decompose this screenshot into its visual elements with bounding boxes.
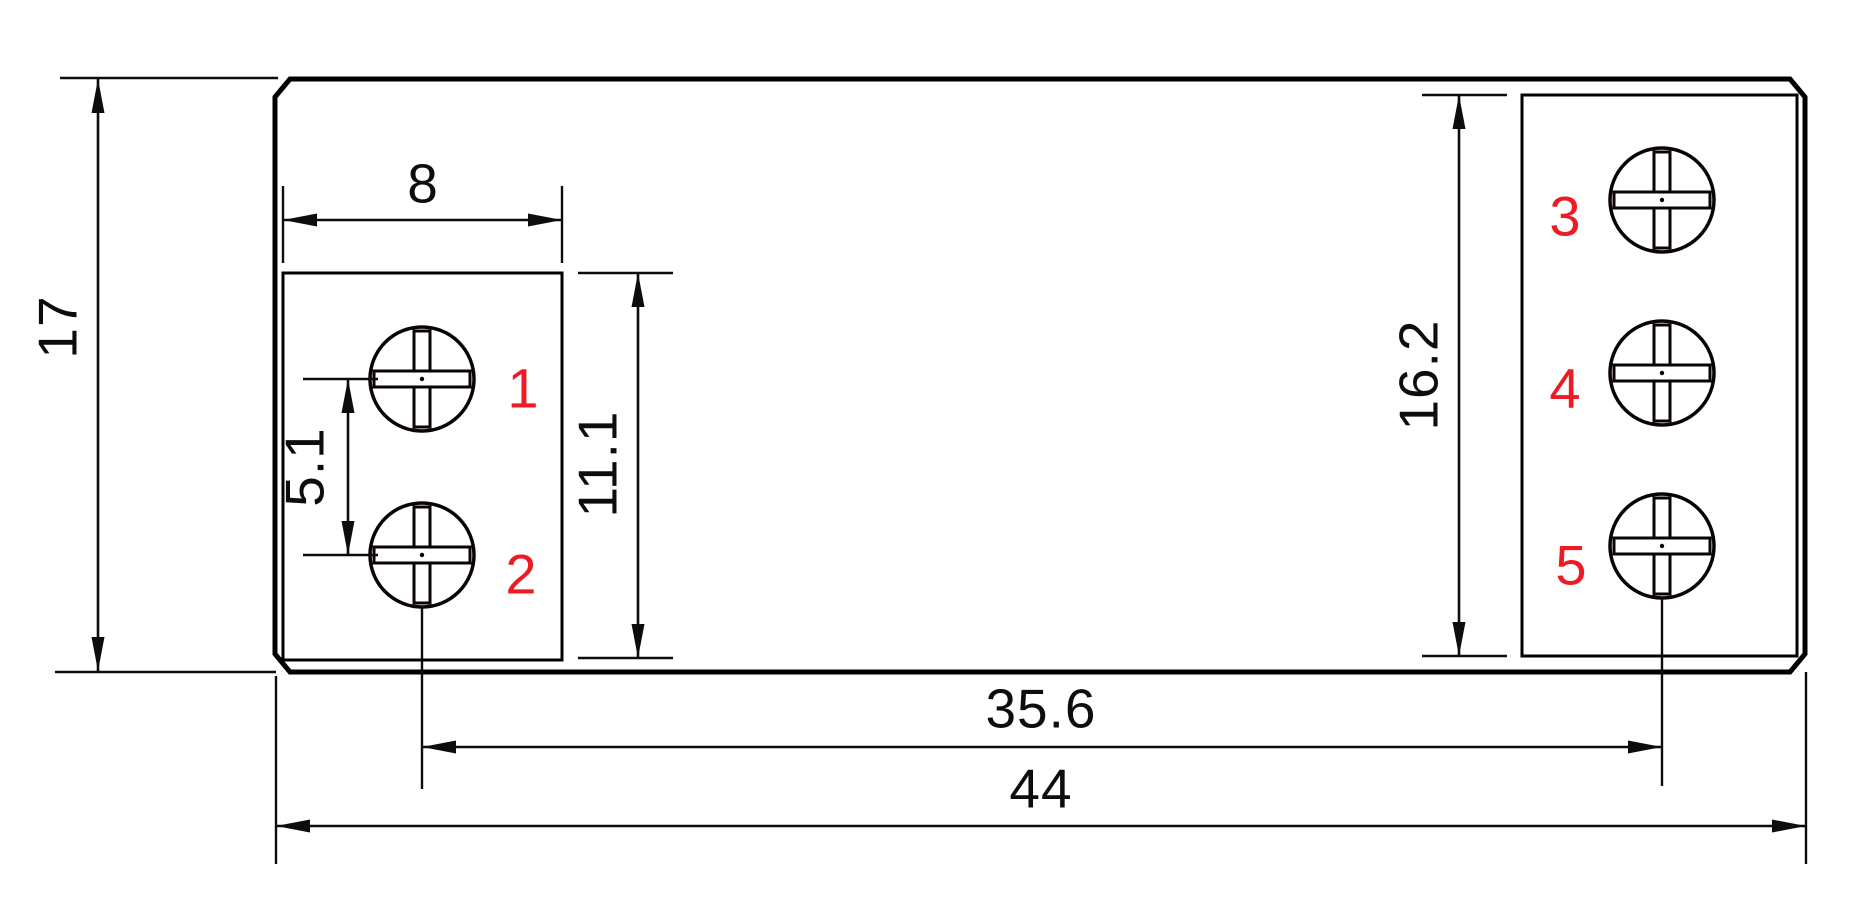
drawing-canvas: 17 8 5.1 11.1 16.2 [0,0,1866,901]
dim-11-1-arrow-up [632,273,645,307]
dim-overall-width-label: 44 [1009,757,1072,819]
screw-terminal-1 [370,327,474,431]
dim-11-1-arrow-down [632,624,645,658]
dim-16-2-arrow-down [1453,622,1466,656]
dim-screw-span-label: 35.6 [985,677,1096,739]
terminal-label-3: 3 [1549,185,1580,248]
screw-5-center-dot [1660,544,1664,548]
dim-35-6-arrow-right [1628,741,1662,754]
dim-left-screw-pitch-label: 5.1 [273,427,335,506]
screw-terminal-5 [1610,494,1714,598]
dim-right-block-height: 16.2 [1387,95,1507,656]
terminal-label-5: 5 [1555,534,1586,597]
screw-terminal-3 [1610,148,1714,252]
dim-16-2-arrow-up [1453,95,1466,129]
dim-35-6-arrow-left [422,741,456,754]
screw-4-center-dot [1660,371,1664,375]
screw-2-center-dot [420,553,424,557]
dim-8-arrow-right [528,214,562,227]
dim-left-block-height: 11.1 [566,273,673,658]
dim-8-arrow-left [283,214,317,227]
dim-right-block-height-label: 16.2 [1387,319,1449,430]
screw-3-center-dot [1660,198,1664,202]
dim-left-block-height-label: 11.1 [566,411,628,518]
dim-17-arrow-down [92,637,105,671]
screw-terminal-2 [370,503,474,607]
screw-terminal-4 [1610,321,1714,425]
dimension-drawing: 17 8 5.1 11.1 16.2 [0,0,1866,901]
dim-left-block-width-label: 8 [407,152,439,214]
terminal-label-1: 1 [507,357,538,420]
dim-overall-height-label: 17 [26,295,88,358]
terminal-label-4: 4 [1549,357,1580,420]
dim-44-arrow-left [276,820,310,833]
screw-1-center-dot [420,377,424,381]
dim-44-arrow-right [1772,820,1806,833]
dim-overall-height: 17 [26,78,278,672]
terminal-label-2: 2 [505,543,536,606]
dim-17-arrow-up [92,79,105,113]
dim-left-block-width: 8 [283,152,562,263]
